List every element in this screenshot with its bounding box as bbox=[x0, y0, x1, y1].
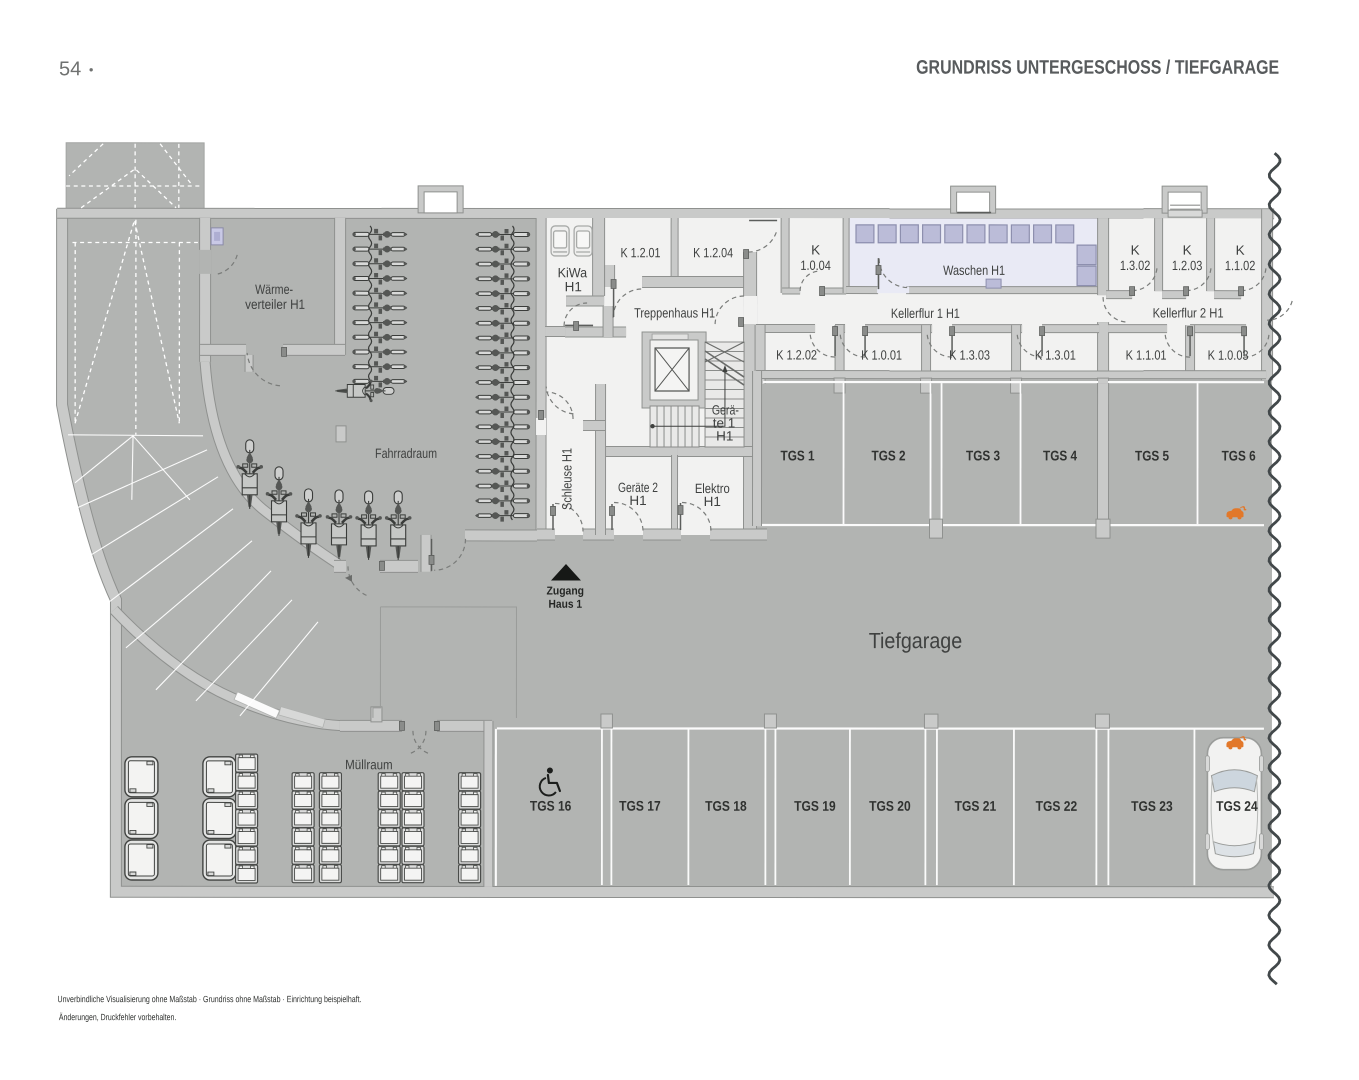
svg-text:K 1.2.04: K 1.2.04 bbox=[693, 245, 733, 260]
svg-text:K 1.3.03: K 1.3.03 bbox=[949, 348, 990, 363]
svg-text:H1: H1 bbox=[704, 494, 721, 509]
svg-text:Zugang: Zugang bbox=[547, 586, 585, 598]
svg-text:K 1.0.03: K 1.0.03 bbox=[1208, 348, 1249, 363]
svg-text:TGS 6: TGS 6 bbox=[1222, 447, 1256, 463]
svg-text:K 1.0.01: K 1.0.01 bbox=[861, 348, 902, 363]
svg-text:54: 54 bbox=[59, 58, 81, 80]
svg-text:Unverbindliche Visualisierung: Unverbindliche Visualisierung ohne Maßst… bbox=[58, 994, 362, 1004]
svg-text:TGS 19: TGS 19 bbox=[794, 798, 836, 814]
svg-text:K: K bbox=[1236, 243, 1245, 258]
svg-text:TGS 20: TGS 20 bbox=[869, 798, 911, 814]
svg-text:Änderungen, Druckfehler vorbeh: Änderungen, Druckfehler vorbehalten. bbox=[59, 1012, 177, 1022]
svg-text:TGS 1: TGS 1 bbox=[781, 447, 815, 463]
svg-text:TGS 23: TGS 23 bbox=[1131, 798, 1173, 814]
svg-text:GRUNDRISS UNTERGESCHOSS / TIEF: GRUNDRISS UNTERGESCHOSS / TIEFGARAGE bbox=[916, 57, 1279, 79]
svg-text:TGS 2: TGS 2 bbox=[872, 447, 906, 463]
svg-text:K: K bbox=[811, 243, 820, 258]
svg-text:Kellerflur 1 H1: Kellerflur 1 H1 bbox=[891, 306, 960, 321]
svg-text:H1: H1 bbox=[629, 493, 646, 508]
svg-text:K: K bbox=[1131, 243, 1140, 258]
svg-text:K 1.3.01: K 1.3.01 bbox=[1035, 348, 1076, 363]
svg-text:Wärme-: Wärme- bbox=[255, 282, 293, 297]
svg-text:TGS 18: TGS 18 bbox=[705, 798, 747, 814]
svg-text:TGS 16: TGS 16 bbox=[530, 798, 572, 814]
svg-text:H1: H1 bbox=[716, 429, 733, 444]
svg-text:Tiefgarage: Tiefgarage bbox=[869, 628, 963, 653]
svg-text:K 1.2.02: K 1.2.02 bbox=[776, 348, 817, 363]
svg-text:Haus 1: Haus 1 bbox=[549, 599, 583, 611]
svg-text:Müllraum: Müllraum bbox=[345, 757, 393, 772]
svg-text:TGS 21: TGS 21 bbox=[955, 798, 997, 814]
svg-text:Kellerflur 2 H1: Kellerflur 2 H1 bbox=[1153, 305, 1224, 320]
svg-text:TGS 5: TGS 5 bbox=[1135, 447, 1169, 463]
svg-text:K: K bbox=[1183, 243, 1192, 258]
svg-text:TGS 17: TGS 17 bbox=[619, 798, 661, 814]
svg-text:H1: H1 bbox=[565, 279, 582, 294]
svg-text:K 1.1.01: K 1.1.01 bbox=[1126, 348, 1167, 363]
svg-text:1.1.02: 1.1.02 bbox=[1225, 258, 1256, 273]
svg-text:Fahrradraum: Fahrradraum bbox=[375, 446, 437, 461]
svg-text:TGS 3: TGS 3 bbox=[966, 447, 1000, 463]
svg-text:1.3.02: 1.3.02 bbox=[1120, 258, 1151, 273]
svg-text:TGS 22: TGS 22 bbox=[1036, 798, 1078, 814]
svg-text:TGS 24: TGS 24 bbox=[1216, 798, 1258, 814]
svg-text:Waschen H1: Waschen H1 bbox=[943, 263, 1005, 278]
svg-text:verteiler H1: verteiler H1 bbox=[245, 297, 305, 312]
svg-text:1.0.04: 1.0.04 bbox=[800, 258, 831, 273]
svg-text:Treppenhaus H1: Treppenhaus H1 bbox=[634, 305, 715, 320]
svg-text:K 1.2.01: K 1.2.01 bbox=[620, 245, 660, 260]
svg-text:Schleuse H1: Schleuse H1 bbox=[560, 448, 575, 510]
svg-text:TGS 4: TGS 4 bbox=[1043, 447, 1077, 463]
svg-text:KiWa: KiWa bbox=[558, 265, 588, 280]
svg-text:1.2.03: 1.2.03 bbox=[1172, 258, 1203, 273]
